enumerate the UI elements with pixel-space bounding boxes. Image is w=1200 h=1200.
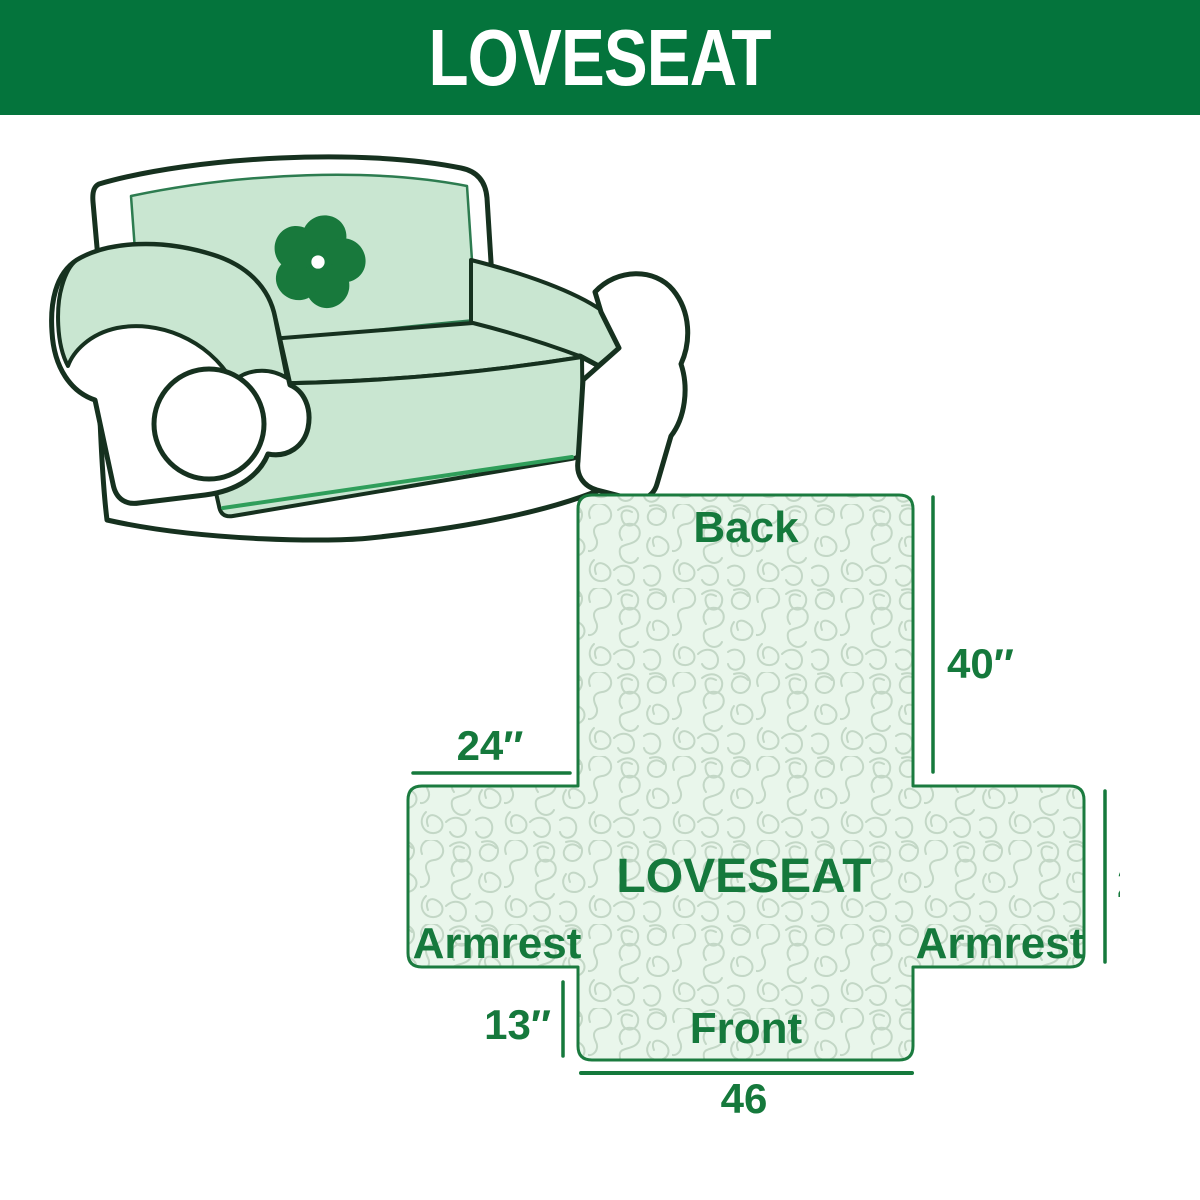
dimension-armrest-width: 24″ bbox=[457, 722, 524, 769]
section-label-armrest-left: Armrest bbox=[413, 919, 582, 968]
header-banner: LOVESEAT bbox=[0, 0, 1200, 115]
diagram-outline bbox=[408, 495, 1084, 1060]
dimension-back-height: 40″ bbox=[947, 640, 1014, 687]
dimension-front-width: 46 bbox=[721, 1075, 768, 1122]
cover-dimension-diagram: Back LOVESEAT Front Armrest Armrest 40″ … bbox=[400, 485, 1120, 1135]
section-label-back: Back bbox=[693, 503, 799, 552]
dimension-side-height: 23″ bbox=[1117, 859, 1120, 906]
section-label-front: Front bbox=[690, 1004, 803, 1053]
page-title: LOVESEAT bbox=[429, 18, 771, 98]
dimension-front-drop: 13″ bbox=[484, 1001, 551, 1048]
sofa-left-arm-scroll bbox=[154, 369, 264, 479]
diagram-center-label: LOVESEAT bbox=[616, 850, 871, 903]
section-label-armrest-right: Armrest bbox=[916, 919, 1085, 968]
cover-diagram-svg: Back LOVESEAT Front Armrest Armrest 40″ … bbox=[400, 485, 1120, 1135]
